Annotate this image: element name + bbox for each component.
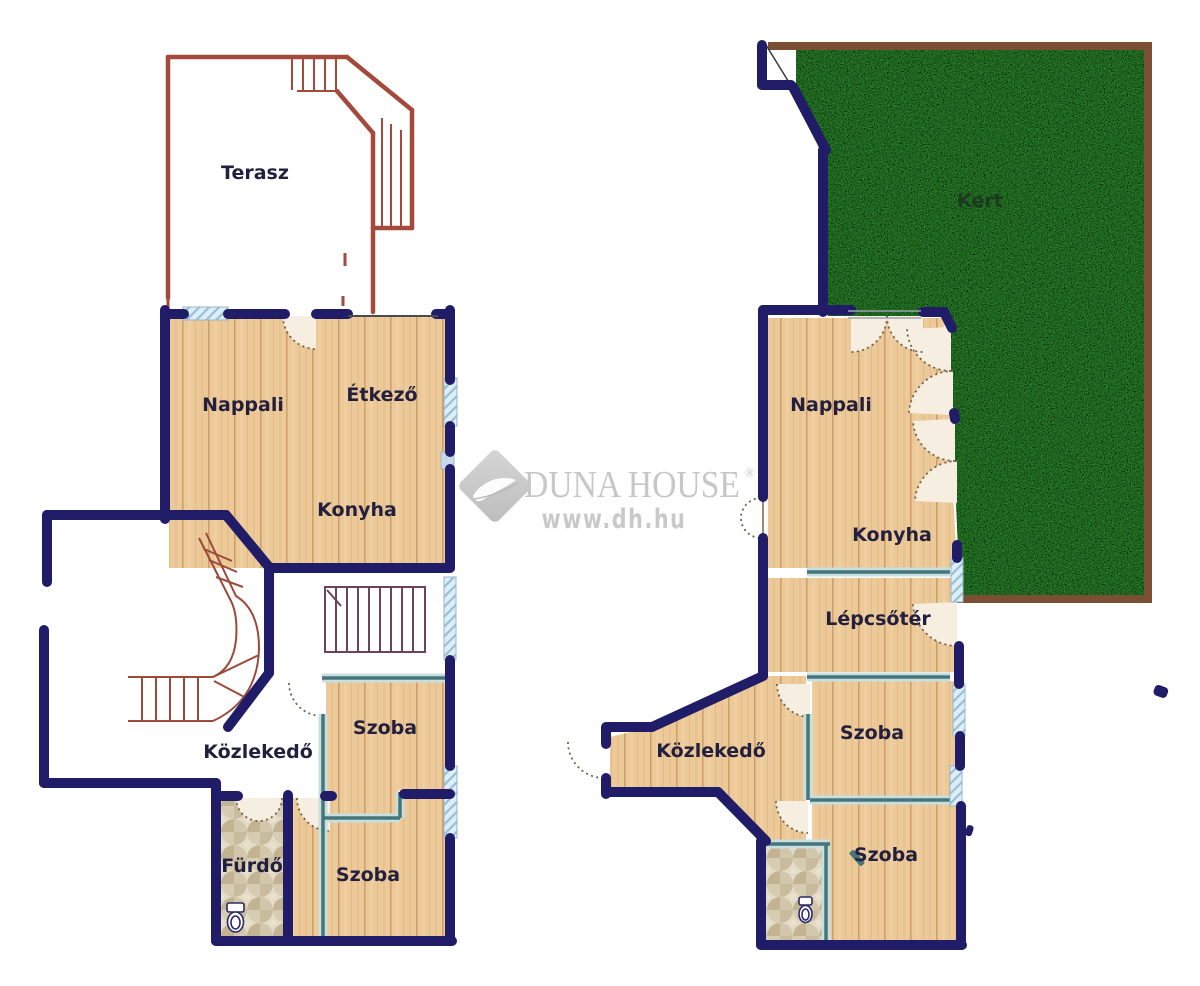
wood-floor-szoba-bottom — [812, 804, 960, 940]
floorplan-canvas: DUNA HOUSE ® www.dh.hu — [0, 0, 1200, 986]
toilet-icon — [227, 903, 244, 932]
door-arc — [741, 498, 761, 538]
room-label-konyha-left: Konyha — [317, 499, 397, 521]
watermark-registered-mark: ® — [745, 465, 755, 480]
room-label-szoba2-left: Szoba — [336, 864, 400, 886]
room-label-szoba1-left: Szoba — [353, 717, 417, 739]
room-label-konyha-right: Konyha — [852, 524, 932, 546]
tile-floor-bathroom — [764, 847, 822, 943]
terrace-outline — [168, 57, 412, 312]
room-label-szoba2-right: Szoba — [854, 844, 918, 866]
watermark-url-text: www.dh.hu — [542, 504, 687, 535]
room-label-kozlekedo-left: Közlekedő — [203, 741, 313, 763]
stairwell-box — [325, 587, 425, 652]
window — [183, 307, 228, 320]
window — [444, 577, 456, 660]
toilet-icon — [799, 897, 812, 923]
terrace-stair-inner — [337, 91, 373, 133]
room-label-furdo: Fürdő — [221, 855, 283, 877]
room-label-terasz: Terasz — [221, 162, 289, 184]
door-arc — [568, 742, 604, 778]
watermark-brand-text: DUNA HOUSE — [524, 464, 740, 506]
room-label-szoba1-right: Szoba — [840, 722, 904, 744]
door-arc — [289, 683, 322, 716]
wall — [228, 673, 269, 727]
garden-border-bottom — [955, 595, 1152, 603]
floorplan-drawing: DUNA HOUSE ® www.dh.hu — [0, 0, 1200, 986]
room-label-lepcsoter: Lépcsőtér — [825, 608, 931, 630]
window — [444, 378, 457, 426]
stair-box-outline — [325, 587, 425, 652]
wood-floor-living — [169, 316, 448, 568]
wall — [954, 413, 955, 419]
room-label-nappali-left: Nappali — [202, 394, 284, 416]
stray-wall-mark — [1152, 684, 1169, 699]
room-label-nappali-right: Nappali — [790, 394, 872, 416]
stair-treads — [292, 57, 336, 90]
garden-gate-line — [766, 45, 790, 84]
window — [950, 766, 962, 806]
stair-treads — [382, 118, 401, 228]
window — [444, 766, 457, 838]
terrace-stair-outer — [347, 57, 412, 110]
stair-winder-mark — [327, 590, 341, 606]
garden-border-right — [1144, 42, 1152, 602]
garden-border-top — [768, 42, 1152, 50]
room-label-kozlekedo-right: Közlekedő — [656, 740, 766, 762]
watermark: DUNA HOUSE ® www.dh.hu — [457, 448, 755, 535]
stair-treads — [336, 587, 413, 652]
window — [953, 684, 965, 736]
window — [951, 558, 963, 602]
room-label-etkezo: Étkező — [346, 383, 417, 406]
room-label-kert: Kert — [957, 190, 1003, 212]
stair-treads — [142, 677, 198, 721]
